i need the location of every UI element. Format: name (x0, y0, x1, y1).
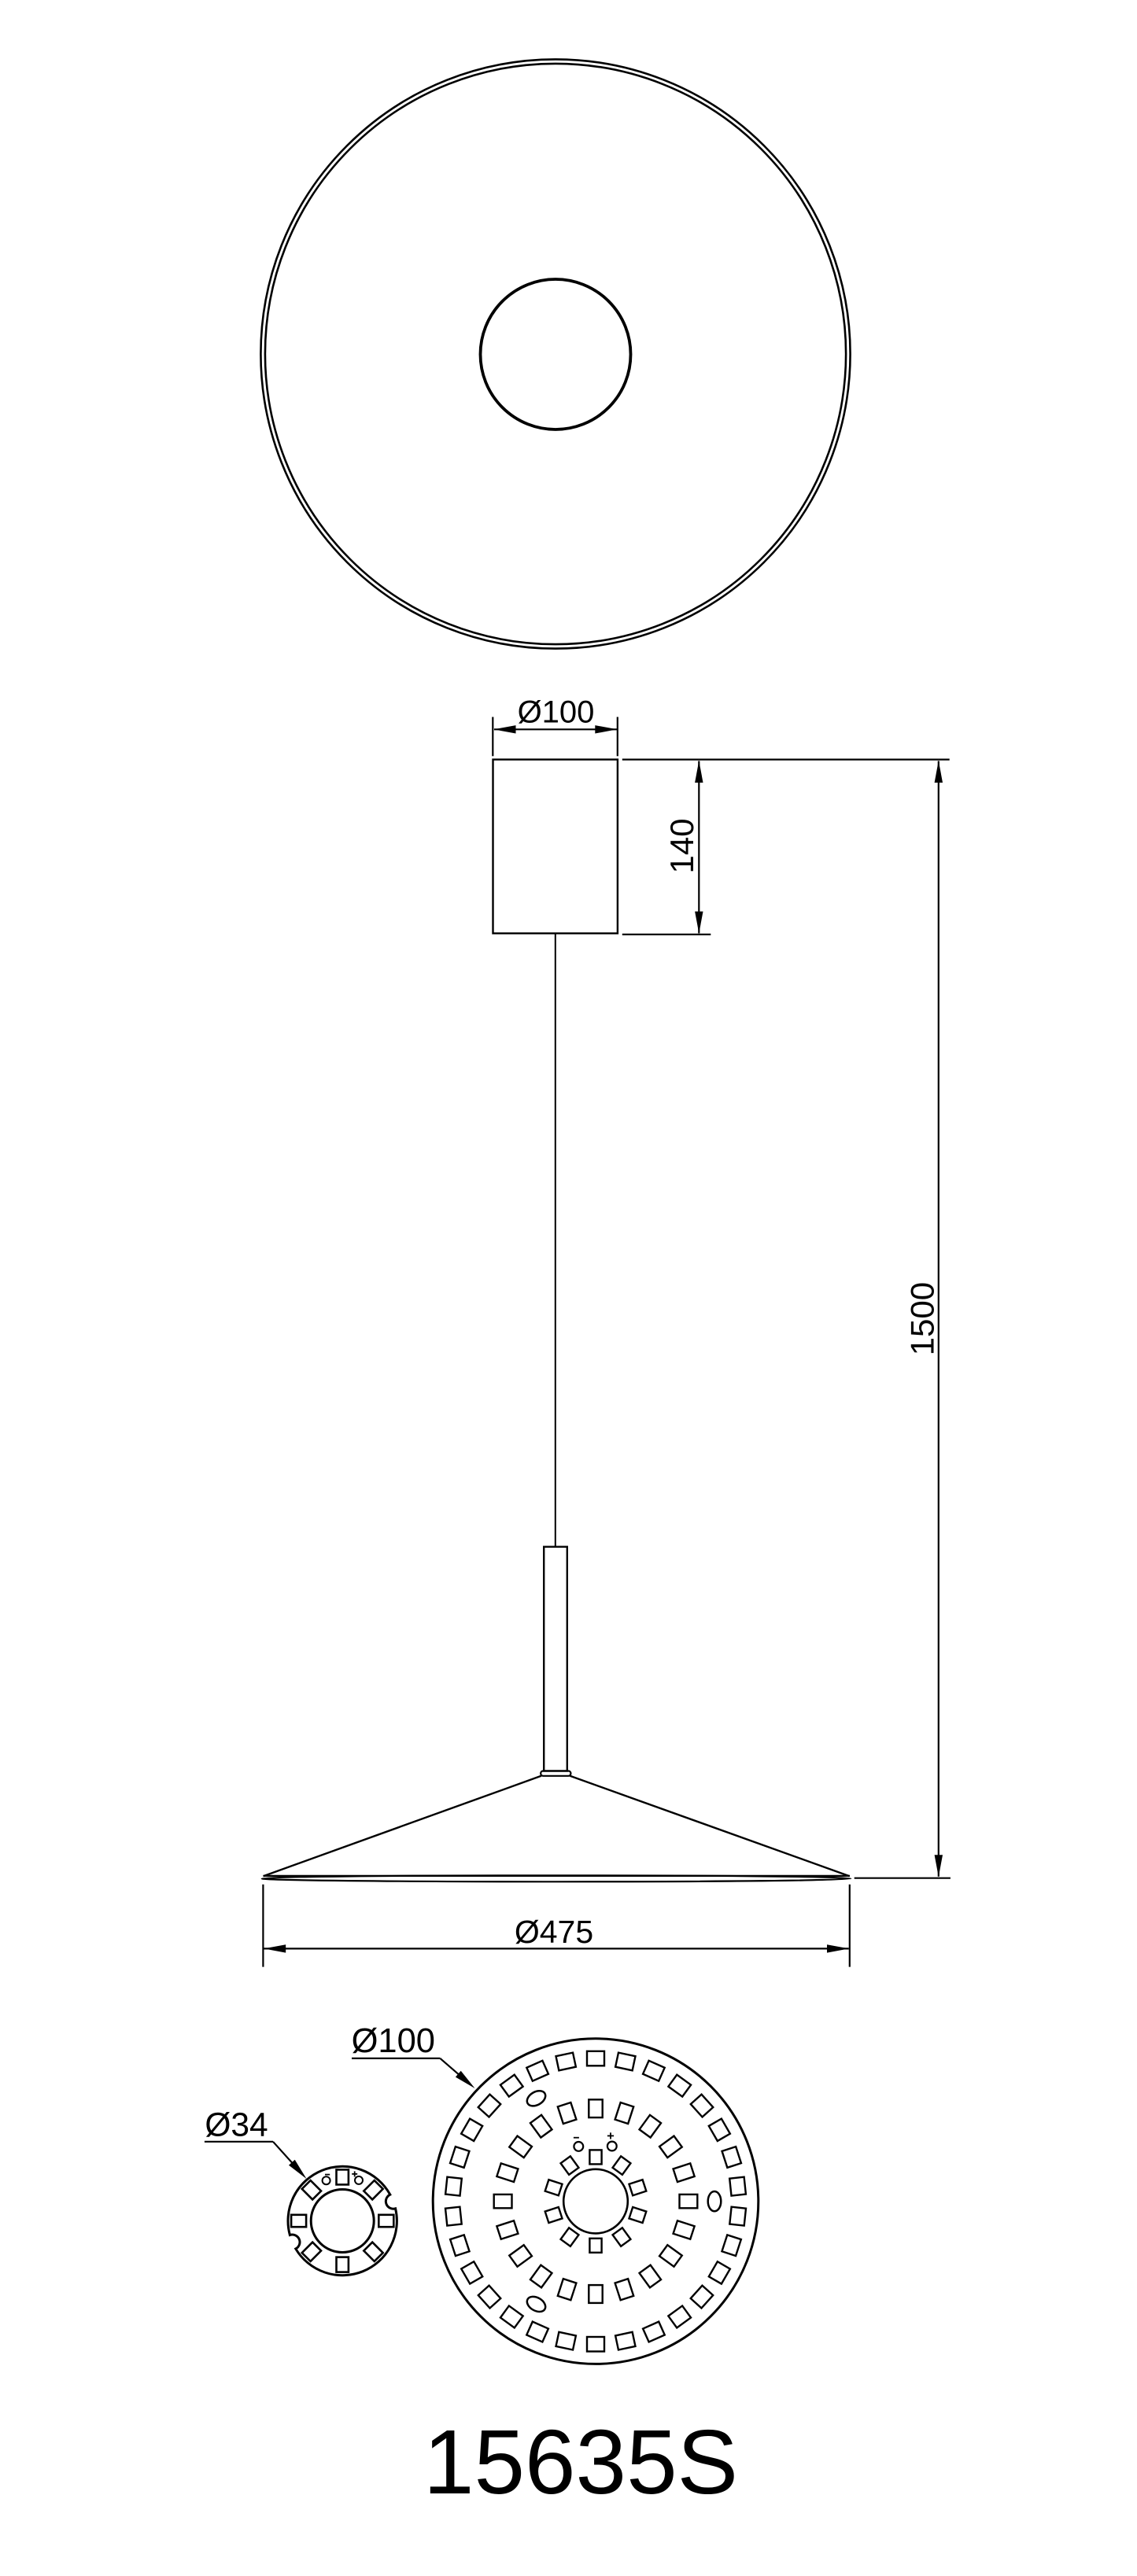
svg-text:Ø100: Ø100 (352, 2022, 435, 2060)
svg-text:Ø34: Ø34 (205, 2106, 268, 2143)
svg-text:Ø100: Ø100 (518, 695, 595, 730)
svg-text:140: 140 (663, 819, 700, 874)
svg-text:15635S: 15635S (423, 2411, 738, 2513)
svg-text:Ø475: Ø475 (515, 1914, 593, 1950)
svg-text:1500: 1500 (904, 1282, 941, 1355)
